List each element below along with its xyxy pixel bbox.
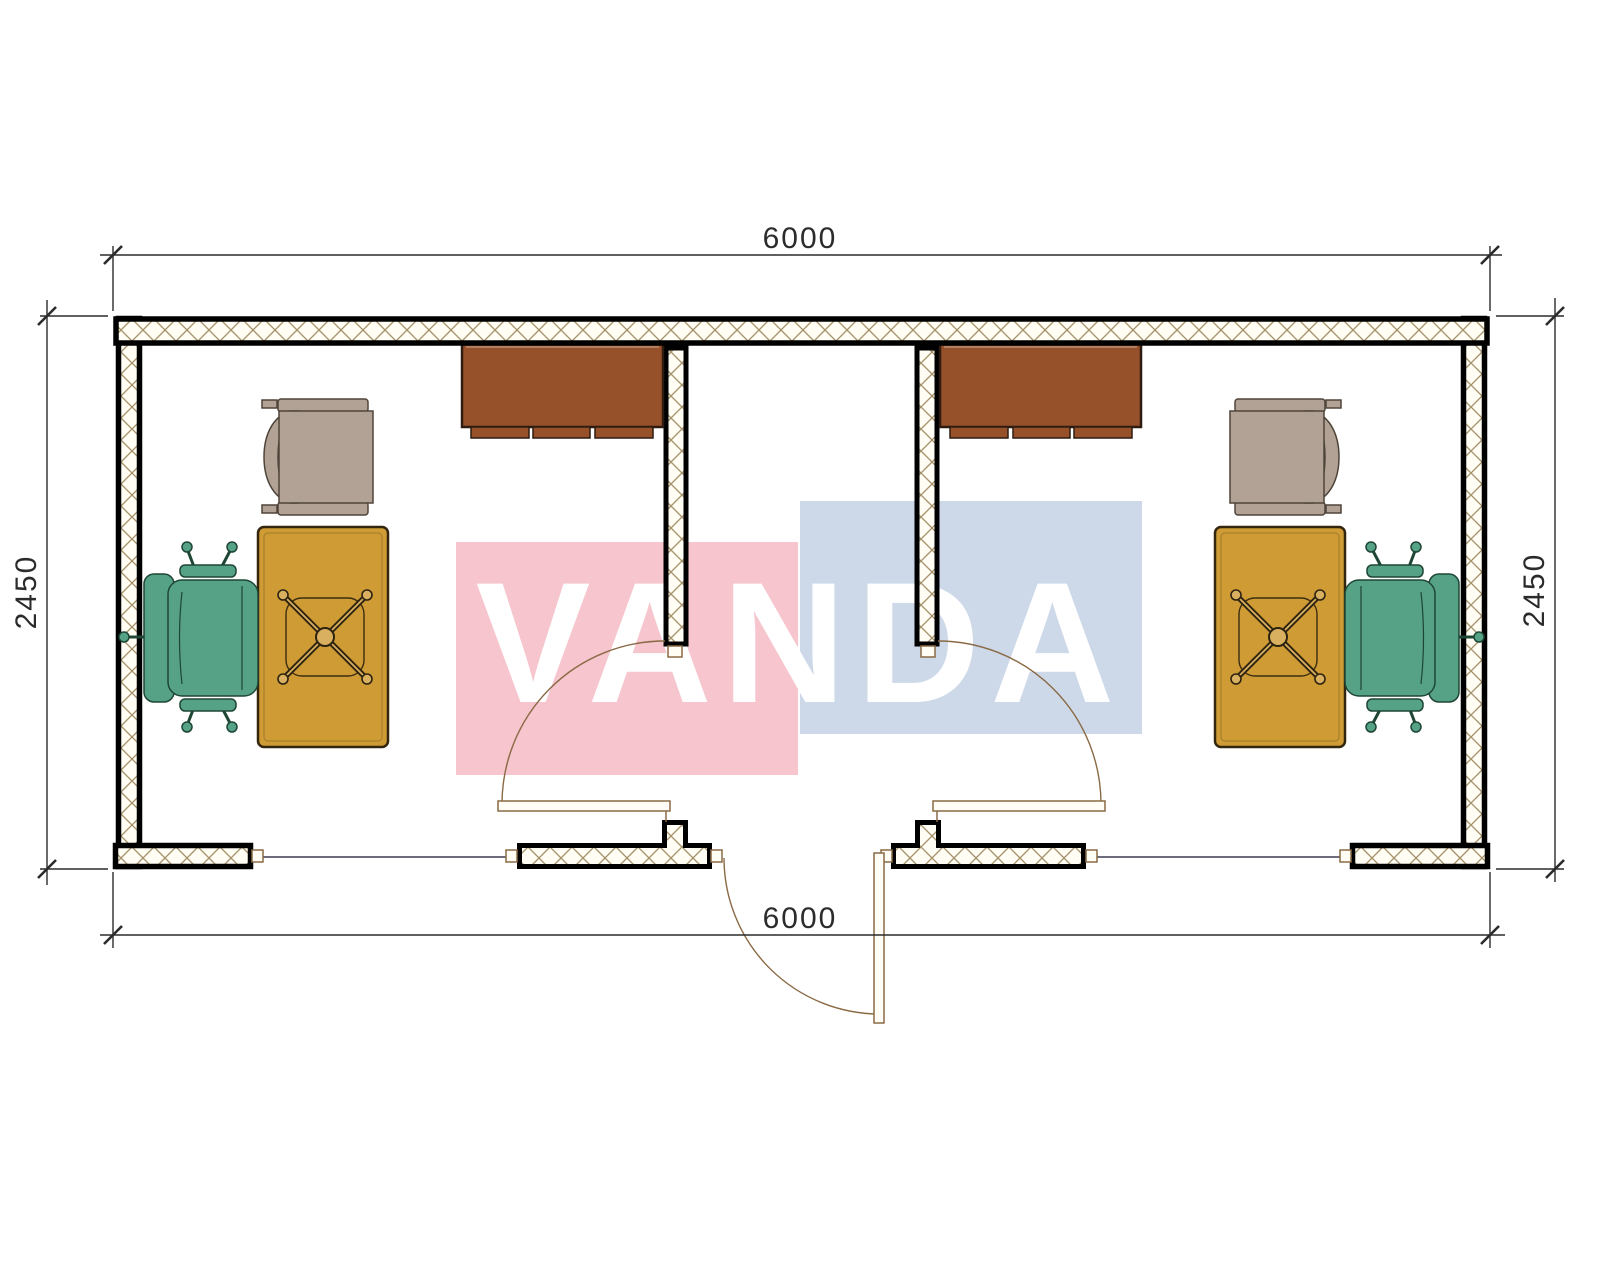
entrance-door-swing-arc (724, 858, 880, 1014)
floor-plan-drawing: VANDA 6000 6000 2450 (0, 0, 1600, 1280)
dim-text-top: 6000 (763, 222, 838, 255)
entrance-door-leaf (874, 853, 884, 1023)
dim-text-bottom: 6000 (763, 902, 838, 935)
top-wall (116, 319, 1487, 343)
dim-text-left: 2450 (10, 555, 43, 630)
entrance-door (724, 853, 884, 1023)
dim-text-right: 2450 (1518, 553, 1551, 628)
watermark: VANDA (456, 501, 1142, 775)
watermark-text: VANDA (476, 547, 1125, 739)
floor-plan-page: VANDA 6000 6000 2450 (0, 0, 1600, 1280)
